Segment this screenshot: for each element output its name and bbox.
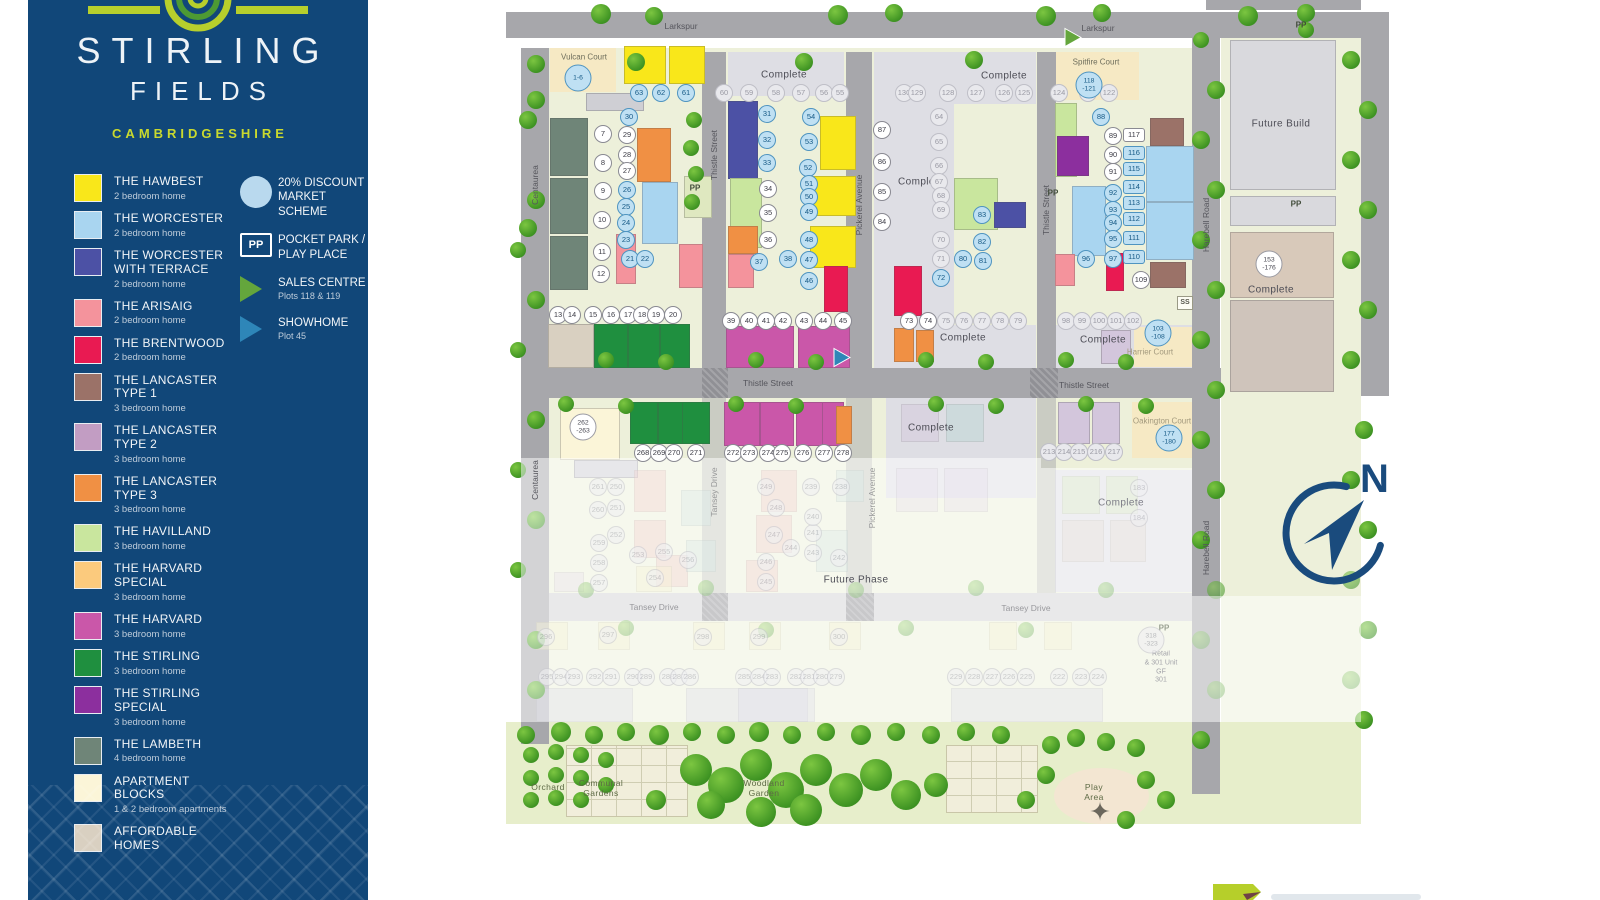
plot-marker-64[interactable]: 64 [930,108,948,126]
plot-marker-26[interactable]: 26 [618,181,636,199]
plot-marker-62[interactable]: 62 [652,84,670,102]
building-lancaster3 [836,406,852,444]
plot-marker-95[interactable]: 95 [1104,230,1122,248]
building-hawbest [669,46,705,84]
plot-marker-127[interactable]: 127 [967,84,985,102]
plot-marker-246[interactable]: 246 [757,553,775,571]
plot-marker-19[interactable]: 19 [647,306,665,324]
plot-marker-255[interactable]: 255 [655,543,673,561]
plot-marker-224[interactable]: 224 [1089,668,1107,686]
tree-icon [1342,251,1360,269]
plot-marker-47[interactable]: 47 [800,251,818,269]
plot-marker-259[interactable]: 259 [590,534,608,552]
plot-marker-34[interactable]: 34 [759,180,777,198]
tree-icon [746,797,776,827]
plot-marker-35[interactable]: 35 [759,204,777,222]
tree-icon [1359,201,1377,219]
tree-icon [645,7,663,25]
plot-marker-71[interactable]: 71 [932,250,950,268]
plot-marker-16[interactable]: 16 [602,306,620,324]
plot-marker-9[interactable]: 9 [594,182,612,200]
plot-marker-30[interactable]: 30 [620,108,638,126]
tree-icon [1093,4,1111,22]
plot-marker-36[interactable]: 36 [759,231,777,249]
plot-marker-7[interactable]: 7 [594,125,612,143]
plot-range-marker[interactable]: 177 -180 [1156,425,1183,452]
plot-marker-80[interactable]: 80 [954,250,972,268]
plot-marker-74[interactable]: 74 [919,312,937,330]
plot-marker-70[interactable]: 70 [932,231,950,249]
plot-marker-29[interactable]: 29 [618,126,636,144]
tree-icon [978,354,994,370]
sales-centre-triangle-icon [240,276,262,302]
building-worcester_terrace [994,202,1026,228]
discount-label: 20% DISCOUNT MARKET SCHEME [278,176,370,219]
building-affordable [548,324,594,368]
plot-marker-33[interactable]: 33 [758,154,776,172]
house-type-swatch [74,649,102,677]
plot-marker-244[interactable]: 244 [782,539,800,557]
tree-icon [627,53,645,71]
tree-icon [790,794,822,826]
plot-tag-115[interactable]: 115 [1123,162,1145,176]
plot-marker-215[interactable]: 215 [1070,443,1088,461]
plot-marker-229[interactable]: 229 [947,668,965,686]
tree-icon [1042,736,1060,754]
plot-tag-114[interactable]: 114 [1123,180,1145,194]
building-hawbest [820,116,856,170]
plot-marker-257[interactable]: 257 [590,574,608,592]
plot-marker-12[interactable]: 12 [592,265,610,283]
building-tan2 [1230,300,1334,392]
house-type-swatch [74,299,102,327]
house-type-text: THE HARVARD SPECIAL3 bedroom home [114,561,239,603]
plot-marker-72[interactable]: 72 [932,269,950,287]
plot-marker-53[interactable]: 53 [800,133,818,151]
plot-marker-260[interactable]: 260 [589,501,607,519]
road [521,368,1221,398]
plot-marker-77[interactable]: 77 [973,312,991,330]
court-label: Vulcan Court [561,53,607,62]
plot-marker-84[interactable]: 84 [873,213,891,231]
building-lambeth [550,178,588,234]
plot-marker-100[interactable]: 100 [1090,312,1108,330]
plot-marker-11[interactable]: 11 [593,243,611,261]
tree-icon [829,773,863,807]
court-label: Oakington Court [1133,417,1191,426]
plot-marker-125[interactable]: 125 [1015,84,1033,102]
building-stirling [630,402,658,444]
house-type-swatch [74,373,102,401]
plot-marker-297[interactable]: 297 [599,626,617,644]
discount-circle-icon [240,176,272,208]
plot-marker-57[interactable]: 57 [792,84,810,102]
tree-icon [924,773,948,797]
tree-icon [749,722,769,742]
legend-item-the-havilland: THE HAVILLAND3 bedroom home [74,524,239,552]
tree-icon [1157,791,1175,809]
plot-marker-37[interactable]: 37 [750,253,768,271]
house-type-sub: 3 bedroom home [114,629,202,640]
plot-marker-241[interactable]: 241 [804,524,822,542]
tree-icon [548,790,564,806]
tree-icon [573,747,589,763]
plot-marker-31[interactable]: 31 [758,105,776,123]
tree-icon [548,744,564,760]
plot-marker-78[interactable]: 78 [991,312,1009,330]
tree-icon [795,53,813,71]
plot-marker-250[interactable]: 250 [607,478,625,496]
house-type-name: THE STIRLING SPECIAL [114,686,239,715]
plot-marker-275[interactable]: 275 [773,444,791,462]
plot-marker-101[interactable]: 101 [1107,312,1125,330]
plot-marker-277[interactable]: 277 [815,444,833,462]
plot-marker-289[interactable]: 289 [637,668,655,686]
plot-marker-85[interactable]: 85 [873,183,891,201]
plot-marker-223[interactable]: 223 [1072,668,1090,686]
plot-marker-39[interactable]: 39 [722,312,740,330]
plot-marker-291[interactable]: 291 [602,668,620,686]
tree-icon [1117,811,1135,829]
plot-marker-43[interactable]: 43 [795,312,813,330]
tree-icon [1067,729,1085,747]
plot-marker-87[interactable]: 87 [873,121,891,139]
house-type-name: THE HAVILLAND [114,524,211,539]
tree-icon [928,396,944,412]
legend-item-the-arisaig: THE ARISAIG2 bedroom home [74,299,239,327]
tree-icon [1359,621,1377,639]
legend-sales-centre: SALES CENTRE Plots 118 & 119 [240,276,370,302]
plot-range-marker[interactable]: 118 -121 [1076,72,1103,99]
plot-marker-20[interactable]: 20 [664,306,682,324]
plot-marker-227[interactable]: 227 [983,668,1001,686]
plot-marker-258[interactable]: 258 [590,554,608,572]
plot-marker-61[interactable]: 61 [677,84,695,102]
legend-item-the-stirling: THE STIRLING3 bedroom home [74,649,239,677]
tree-icon [1127,739,1145,757]
plot-range-marker[interactable]: 262 -263 [570,414,597,441]
house-type-sub: 3 bedroom home [114,717,239,728]
pocket-park-mark: PP [1048,189,1059,198]
plot-tag-112[interactable]: 112 [1123,212,1145,226]
plot-marker-128[interactable]: 128 [939,84,957,102]
tree-icon [1342,51,1360,69]
tree-icon [688,166,704,182]
building-stirling_special [1057,136,1089,176]
plot-marker-296[interactable]: 296 [537,628,555,646]
plot-marker-69[interactable]: 69 [932,201,950,219]
street-label: Thistle Street [1059,380,1109,390]
house-type-sub: 3 bedroom home [114,666,200,677]
legend-item-the-lambeth: THE LAMBETH4 bedroom home [74,737,239,765]
house-type-name: THE HARVARD [114,612,202,627]
plot-marker-247[interactable]: 247 [765,526,783,544]
tree-icon [686,112,702,128]
building-worcester [1146,202,1194,260]
tree-icon [527,291,545,309]
area-label: Complete [1080,335,1126,346]
plot-marker-286[interactable]: 286 [681,668,699,686]
plot-marker-273[interactable]: 273 [740,444,758,462]
plot-marker-97[interactable]: 97 [1104,250,1122,268]
plot-marker-58[interactable]: 58 [767,84,785,102]
plot-marker-32[interactable]: 32 [758,131,776,149]
plot-marker-90[interactable]: 90 [1104,146,1122,164]
showhome-plot: Plot 45 [278,331,348,341]
tree-icon [684,194,700,210]
tree-icon [510,242,526,258]
tree-icon [1138,398,1154,414]
plot-marker-45[interactable]: 45 [834,312,852,330]
building-lambeth [550,236,588,290]
plot-marker-54[interactable]: 54 [802,108,820,126]
plot-marker-73[interactable]: 73 [900,312,918,330]
tree-icon [527,91,545,109]
plot-marker-41[interactable]: 41 [757,312,775,330]
plot-marker-59[interactable]: 59 [740,84,758,102]
diamond-pattern [28,785,368,900]
site-title-2: FIELDS [28,76,368,107]
plot-marker-298[interactable]: 298 [694,628,712,646]
house-type-name: THE STIRLING [114,649,200,664]
house-type-sub: 3 bedroom home [114,403,239,414]
plot-marker-243[interactable]: 243 [804,544,822,562]
tree-icon [1207,281,1225,299]
house-type-text: THE HAVILLAND3 bedroom home [114,524,211,552]
plot-marker-226[interactable]: 226 [1000,668,1018,686]
tree-icon [1137,771,1155,789]
plot-marker-248[interactable]: 248 [767,499,785,517]
plot-marker-99[interactable]: 99 [1073,312,1091,330]
building-stirling [628,324,660,368]
house-type-text: THE LANCASTER TYPE 13 bedroom home [114,373,239,415]
plot-range-marker[interactable]: 318 -323 [1138,627,1165,654]
tree-icon [646,790,666,810]
plot-marker-88[interactable]: 88 [1092,108,1110,126]
plot-marker-83[interactable]: 83 [973,206,991,224]
plot-marker-217[interactable]: 217 [1105,443,1123,461]
tree-icon [918,352,934,368]
plot-marker-270[interactable]: 270 [665,444,683,462]
plot-marker-228[interactable]: 228 [965,668,983,686]
pocket-park-icon: PP [240,233,272,257]
plot-marker-14[interactable]: 14 [563,306,581,324]
house-type-sub: 4 bedroom home [114,753,201,764]
plot-marker-252[interactable]: 252 [607,526,625,544]
county-label: CAMBRIDGESHIRE [28,126,368,141]
plot-marker-126[interactable]: 126 [995,84,1013,102]
plot-marker-15[interactable]: 15 [584,306,602,324]
plot-marker-27[interactable]: 27 [618,162,636,180]
street-label: Harebell Road [1201,521,1211,575]
plot-marker-242[interactable]: 242 [830,549,848,567]
plot-marker-283[interactable]: 283 [763,668,781,686]
tree-icon [922,726,940,744]
plot-marker-48[interactable]: 48 [800,231,818,249]
plot-marker-184[interactable]: 184 [1130,509,1148,527]
plot-marker-82[interactable]: 82 [973,233,991,251]
building-stirling [658,402,684,444]
street-label: Pickerel Avenue [867,468,877,529]
house-type-sub: 2 bedroom home [114,352,225,363]
tree-icon [1192,731,1210,749]
tree-icon [1359,101,1377,119]
tree-icon [783,726,801,744]
plot-marker-49[interactable]: 49 [800,203,818,221]
map-sales-triangle-icon[interactable] [1064,28,1082,53]
plot-tag-110[interactable]: 110 [1123,250,1145,264]
plot-marker-76[interactable]: 76 [955,312,973,330]
building-lancaster1 [1150,262,1186,288]
plot-marker-129[interactable]: 129 [908,84,926,102]
plot-marker-46[interactable]: 46 [800,272,818,290]
house-type-text: THE STIRLING SPECIAL3 bedroom home [114,686,239,728]
plot-range-marker[interactable]: 153 -176 [1256,251,1283,278]
tree-icon [527,411,545,429]
legend-item-the-stirling-special: THE STIRLING SPECIAL3 bedroom home [74,686,239,728]
building-lavender [1092,402,1120,444]
plot-marker-63[interactable]: 63 [630,84,648,102]
plot-marker-124[interactable]: 124 [1050,84,1068,102]
plot-marker-253[interactable]: 253 [629,546,647,564]
tree-icon [548,767,564,783]
tree-icon [1207,381,1225,399]
plot-marker-10[interactable]: 10 [593,211,611,229]
plot-marker-240[interactable]: 240 [804,508,822,526]
plot-marker-60[interactable]: 60 [715,84,733,102]
plot-marker-24[interactable]: 24 [617,214,635,232]
house-type-swatch [74,612,102,640]
plot-marker-122[interactable]: 122 [1100,84,1118,102]
house-type-sub: 2 bedroom home [114,191,204,202]
legend-discount: 20% DISCOUNT MARKET SCHEME [240,176,370,219]
legend-item-the-worcester-with-terrace: THE WORCESTER WITH TERRACE2 bedroom home [74,248,239,290]
plot-marker-216[interactable]: 216 [1087,443,1105,461]
tree-icon [517,726,535,744]
house-type-swatch [74,248,102,276]
house-type-sub: 3 bedroom home [114,592,239,603]
plot-marker-75[interactable]: 75 [937,312,955,330]
house-type-swatch [74,524,102,552]
tree-icon [887,723,905,741]
plot-marker-222[interactable]: 222 [1050,668,1068,686]
plot-marker-256[interactable]: 256 [679,551,697,569]
tree-icon [1359,301,1377,319]
building-fb [1230,40,1336,190]
plot-range-marker[interactable]: 103 -108 [1145,320,1172,347]
street-label: Thistle Street [709,130,719,180]
plot-marker-38[interactable]: 38 [779,250,797,268]
plot-marker-81[interactable]: 81 [974,252,992,270]
area-label: Complete [908,423,954,434]
area-label: Complete [940,333,986,344]
plot-marker-8[interactable]: 8 [594,154,612,172]
tree-icon [728,396,744,412]
plot-marker-79[interactable]: 79 [1009,312,1027,330]
pocket-park-mark: PP [690,184,701,193]
tree-icon [1017,791,1035,809]
plot-marker-92[interactable]: 92 [1104,184,1122,202]
plot-marker-55[interactable]: 55 [831,84,849,102]
house-type-sub: 2 bedroom home [114,228,223,239]
house-type-text: THE WORCESTER WITH TERRACE2 bedroom home [114,248,239,290]
plot-marker-279[interactable]: 279 [827,668,845,686]
plot-marker-276[interactable]: 276 [794,444,812,462]
plot-marker-40[interactable]: 40 [740,312,758,330]
site-plan-page: { "sidebar": { "title_line1": "STIRLING"… [0,0,1600,900]
plot-marker-44[interactable]: 44 [814,312,832,330]
plot-range-marker[interactable]: 1-6 [565,65,592,92]
site-plan-map: LarkspurLarkspurThistle StreetThistle St… [506,0,1390,824]
plot-marker-278[interactable]: 278 [834,444,852,462]
tree-icon [527,55,545,73]
plot-marker-65[interactable]: 65 [930,133,948,151]
plot-marker-225[interactable]: 225 [1017,668,1035,686]
plot-marker-109[interactable]: 109 [1132,271,1150,289]
plot-marker-251[interactable]: 251 [607,499,625,517]
tree-icon [1193,32,1209,48]
plot-marker-23[interactable]: 23 [617,231,635,249]
legend-item-the-lancaster-type-2: THE LANCASTER TYPE 23 bedroom home [74,423,239,465]
plot-marker-249[interactable]: 249 [757,478,775,496]
tree-icon [1207,81,1225,99]
plot-marker-183[interactable]: 183 [1130,479,1148,497]
house-type-text: THE ARISAIG2 bedroom home [114,299,193,327]
plot-marker-86[interactable]: 86 [873,153,891,171]
plot-tag-117[interactable]: 117 [1123,128,1145,142]
tree-icon [1097,733,1115,751]
plot-marker-300[interactable]: 300 [830,628,848,646]
future-phase-veil [1192,596,1361,722]
tree-icon [1192,331,1210,349]
plot-marker-22[interactable]: 22 [636,250,654,268]
plot-marker-238[interactable]: 238 [832,478,850,496]
house-type-swatch [74,423,102,451]
plot-marker-245[interactable]: 245 [757,573,775,591]
plot-marker-254[interactable]: 254 [646,569,664,587]
tree-icon [1355,421,1373,439]
tree-icon [860,759,892,791]
plot-marker-96[interactable]: 96 [1077,250,1095,268]
substation-box: SS [1177,296,1193,310]
tree-icon [891,780,921,810]
tree-icon [683,140,699,156]
plot-tag-116[interactable]: 116 [1123,146,1145,160]
tree-icon [1192,131,1210,149]
building-lancaster1 [1150,118,1184,146]
plot-marker-239[interactable]: 239 [802,478,820,496]
building-lambeth [550,118,588,176]
plot-marker-299[interactable]: 299 [750,628,768,646]
play-area-star-icon: ✦ [1089,797,1111,828]
plot-marker-293[interactable]: 293 [565,668,583,686]
legend-item-the-lancaster-type-1: THE LANCASTER TYPE 13 bedroom home [74,373,239,415]
plot-marker-261[interactable]: 261 [589,478,607,496]
house-type-legend: THE HAWBEST2 bedroom homeTHE WORCESTER2 … [74,174,239,862]
tree-icon [591,4,611,24]
legend-pocket-park: PP POCKET PARK / PLAY PLACE [240,233,370,262]
plot-marker-91[interactable]: 91 [1104,163,1122,181]
map-showhome-triangle-icon[interactable] [833,348,851,373]
plot-marker-102[interactable]: 102 [1124,312,1142,330]
plot-tag-113[interactable]: 113 [1123,196,1145,210]
tree-icon [1207,481,1225,499]
legend-showhome: SHOWHOME Plot 45 [240,316,370,342]
plot-marker-42[interactable]: 42 [774,312,792,330]
plot-marker-89[interactable]: 89 [1104,127,1122,145]
plot-marker-271[interactable]: 271 [687,444,705,462]
plot-tag-111[interactable]: 111 [1123,231,1145,245]
